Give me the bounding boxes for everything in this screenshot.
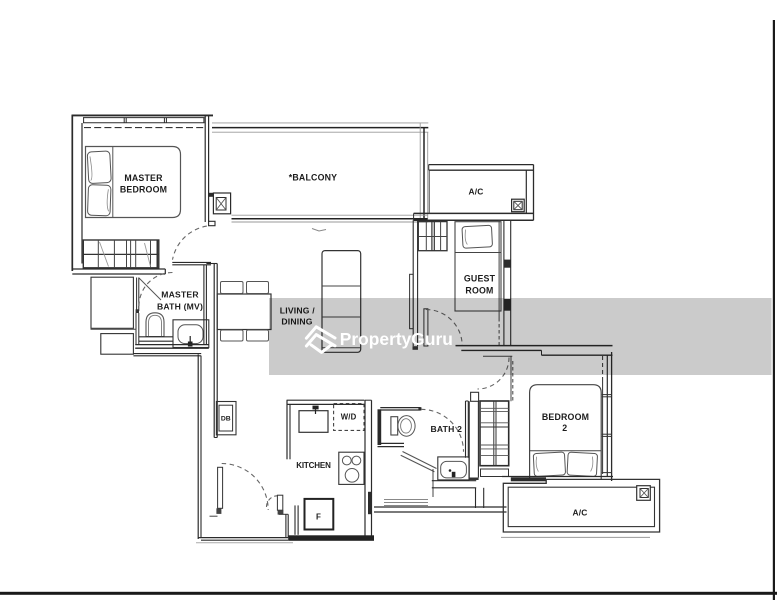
svg-text:A/C: A/C <box>468 187 483 197</box>
svg-text:PropertyGuru: PropertyGuru <box>340 329 453 349</box>
svg-text:BATH 2: BATH 2 <box>430 424 462 434</box>
svg-text:MASTER: MASTER <box>124 173 163 183</box>
svg-text:F: F <box>316 513 321 522</box>
svg-text:KITCHEN: KITCHEN <box>296 461 331 470</box>
svg-text:W/D: W/D <box>341 412 357 421</box>
svg-text:ROOM: ROOM <box>465 286 493 296</box>
svg-text:*BALCONY: *BALCONY <box>289 173 338 183</box>
svg-text:GUEST: GUEST <box>464 274 496 284</box>
svg-text:2: 2 <box>562 423 567 433</box>
svg-text:BEDROOM: BEDROOM <box>542 412 589 422</box>
svg-text:DB: DB <box>221 416 231 423</box>
svg-text:A/C: A/C <box>572 508 587 518</box>
svg-text:MASTER: MASTER <box>161 290 199 300</box>
svg-text:BATH (MV): BATH (MV) <box>157 302 203 312</box>
svg-text:BEDROOM: BEDROOM <box>120 185 167 195</box>
